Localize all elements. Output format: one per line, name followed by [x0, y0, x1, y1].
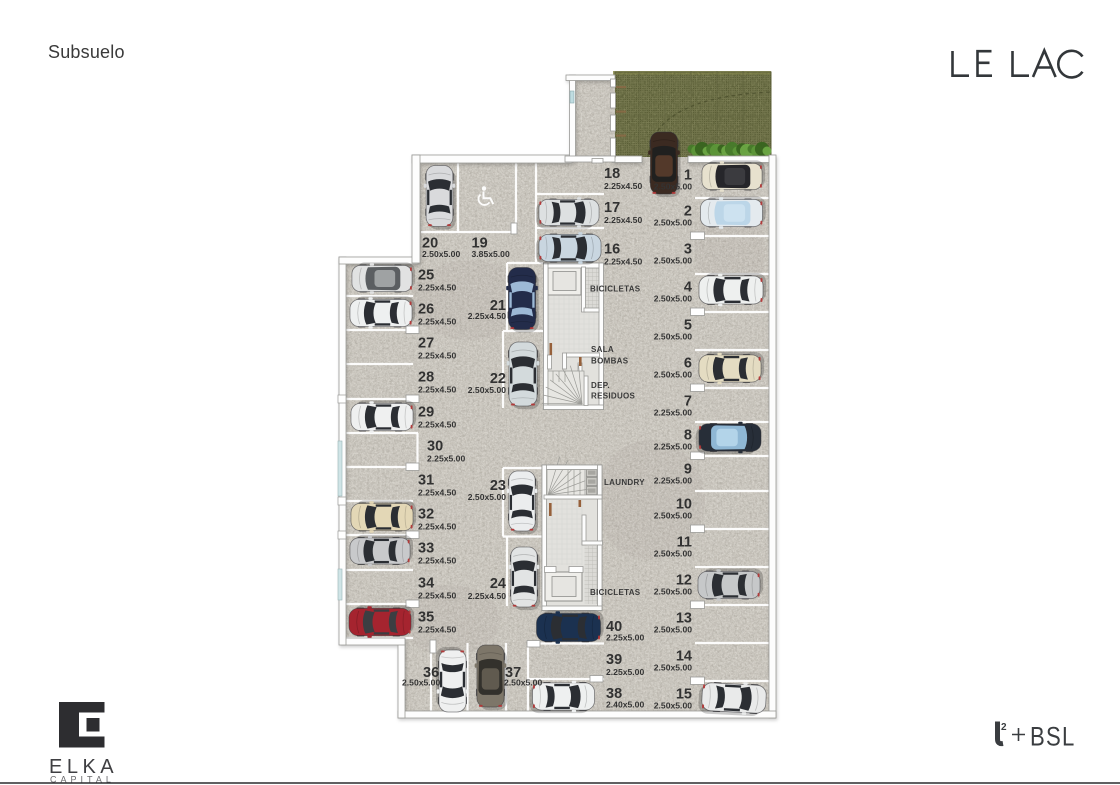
svg-text:2.50x5.00: 2.50x5.00	[654, 511, 692, 521]
svg-text:Subsuelo: Subsuelo	[48, 42, 125, 62]
svg-text:2.25x4.50: 2.25x4.50	[418, 556, 456, 566]
svg-text:2.50x5.00: 2.50x5.00	[654, 218, 692, 228]
svg-text:35: 35	[418, 610, 434, 626]
svg-text:2.50x5.00: 2.50x5.00	[654, 663, 692, 673]
svg-text:2.25x5.00: 2.25x5.00	[606, 667, 644, 677]
svg-text:2.25x4.50: 2.25x4.50	[604, 215, 642, 225]
svg-text:RESIDUOS: RESIDUOS	[591, 392, 636, 401]
svg-text:2.25x4.50: 2.25x4.50	[418, 420, 456, 430]
svg-text:2.25x5.00: 2.25x5.00	[654, 442, 692, 452]
svg-text:26: 26	[418, 302, 434, 318]
svg-text:2.50x5.00: 2.50x5.00	[504, 678, 542, 688]
svg-text:28: 28	[418, 370, 434, 386]
svg-text:2.50x5.00: 2.50x5.00	[654, 549, 692, 559]
svg-text:2.50x5.00: 2.50x5.00	[468, 492, 506, 502]
svg-text:32: 32	[418, 507, 434, 523]
svg-text:2.25x4.50: 2.25x4.50	[418, 488, 456, 498]
svg-text:BICICLETAS: BICICLETAS	[590, 285, 641, 294]
svg-text:34: 34	[418, 576, 434, 592]
svg-text:2: 2	[1001, 722, 1007, 733]
svg-text:2.50x5.00: 2.50x5.00	[654, 332, 692, 342]
svg-text:SALA: SALA	[591, 345, 614, 354]
svg-text:2.25x4.50: 2.25x4.50	[418, 317, 456, 327]
svg-text:2.25x5.00: 2.25x5.00	[427, 454, 465, 464]
svg-text:17: 17	[604, 200, 620, 216]
svg-text:2.25x4.50: 2.25x4.50	[418, 351, 456, 361]
svg-text:2.25x4.50: 2.25x4.50	[418, 625, 456, 635]
svg-text:DEP.: DEP.	[591, 381, 610, 390]
svg-text:30: 30	[427, 439, 443, 455]
svg-text:2.25x5.00: 2.25x5.00	[654, 476, 692, 486]
svg-text:2.50x5.00: 2.50x5.00	[654, 256, 692, 266]
svg-text:3.85x5.00: 3.85x5.00	[472, 249, 510, 259]
svg-text:18: 18	[604, 166, 620, 182]
svg-text:2.25x5.00: 2.25x5.00	[606, 633, 644, 643]
svg-text:2.25x4.50: 2.25x4.50	[418, 591, 456, 601]
svg-text:39: 39	[606, 652, 622, 668]
svg-text:2.25x4.50: 2.25x4.50	[418, 283, 456, 293]
svg-text:16: 16	[604, 242, 620, 258]
svg-text:2.25x4.50: 2.25x4.50	[468, 591, 506, 601]
svg-text:2.25x4.50: 2.25x4.50	[604, 257, 642, 267]
svg-text:2.25x5.00: 2.25x5.00	[654, 408, 692, 418]
svg-text:2.50x5.00: 2.50x5.00	[468, 385, 506, 395]
svg-text:LAUNDRY: LAUNDRY	[604, 478, 645, 487]
svg-text:2.40x5.00: 2.40x5.00	[606, 700, 644, 710]
svg-text:2.50x5.00: 2.50x5.00	[654, 370, 692, 380]
svg-text:24: 24	[490, 576, 506, 592]
svg-text:2.50x5.00: 2.50x5.00	[654, 701, 692, 711]
svg-text:25: 25	[418, 268, 434, 284]
svg-text:2.25x4.50: 2.25x4.50	[604, 181, 642, 191]
svg-text:2.50x5.00: 2.50x5.00	[422, 249, 460, 259]
svg-text:BOMBAS: BOMBAS	[591, 357, 629, 366]
svg-text:2.25x4.50: 2.25x4.50	[468, 311, 506, 321]
svg-text:BSL: BSL	[1030, 723, 1076, 753]
svg-text:2.50x5.00: 2.50x5.00	[654, 294, 692, 304]
svg-text:27: 27	[418, 336, 434, 352]
svg-text:BICICLETAS: BICICLETAS	[590, 588, 641, 597]
svg-text:33: 33	[418, 541, 434, 557]
svg-text:2.50x5.00: 2.50x5.00	[402, 678, 440, 688]
svg-text:2.25x4.50: 2.25x4.50	[418, 522, 456, 532]
svg-text:31: 31	[418, 473, 434, 489]
svg-text:2.50x5.00: 2.50x5.00	[654, 587, 692, 597]
svg-text:2.50x5.00: 2.50x5.00	[654, 182, 692, 192]
svg-text:2.25x4.50: 2.25x4.50	[418, 385, 456, 395]
svg-text:29: 29	[418, 405, 434, 421]
svg-text:2.50x5.00: 2.50x5.00	[654, 625, 692, 635]
